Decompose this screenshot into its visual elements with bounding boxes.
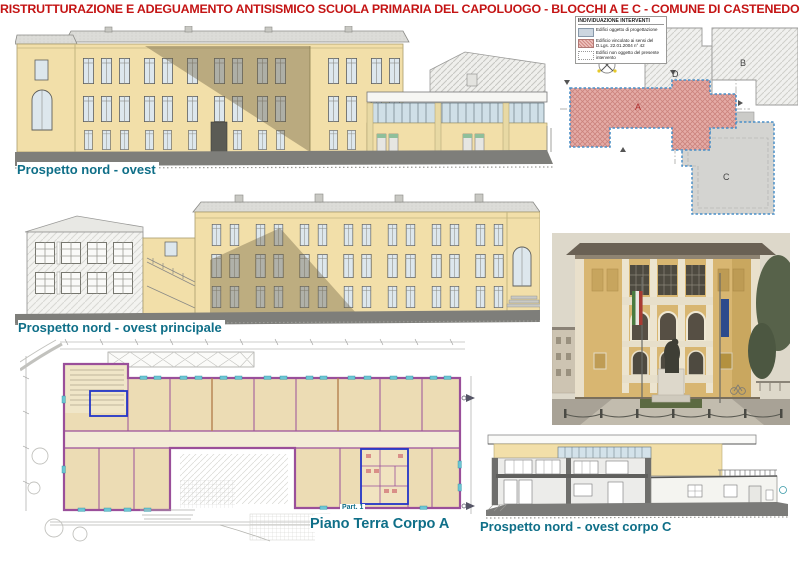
- main-elevation-drawing: [15, 190, 540, 325]
- floor-plan-detail-label: Part. 1: [340, 504, 365, 511]
- top-elevation-svg: [15, 26, 555, 176]
- top-elevation-building: [15, 26, 555, 168]
- photo-top-windows: [630, 265, 705, 295]
- school-photo-svg: [552, 233, 790, 425]
- ground-band: [486, 502, 788, 516]
- top-elevation-label: Prospetto nord - ovest: [17, 162, 159, 177]
- legend-swatch-white-dotted: [578, 51, 594, 60]
- floor-plan-label: Piano Terra Corpo A: [310, 516, 452, 532]
- corpo-c-building: [486, 435, 790, 518]
- legend-item: Edifici non oggetto del presente interve…: [578, 50, 664, 60]
- block-d-label: D: [672, 69, 679, 79]
- presentation-board: { "title": "RISTRUTTURAZIONE E ADEGUAMEN…: [0, 0, 800, 566]
- photo-scene: [552, 233, 790, 425]
- legend-title: INDIVIDUAZIONE INTERVENTI: [578, 18, 664, 25]
- main-elevation-svg: [15, 190, 540, 325]
- corpo-c-elevation-drawing: [478, 430, 793, 522]
- key-plan-legend: INDIVIDUAZIONE INTERVENTI Edifici oggett…: [575, 16, 667, 64]
- main-elevation-building: [15, 194, 540, 325]
- legend-swatch-blue-gray: [578, 28, 594, 37]
- corpo-c-elevation-svg: [478, 430, 793, 522]
- plan-section-arrows: [462, 394, 475, 510]
- block-b-label: B: [740, 58, 746, 68]
- legend-item: Edificio vincolato ai sensi del D.Lgs. 2…: [578, 38, 664, 48]
- corpo-c-elevation-label: Prospetto nord - ovest corpo C: [480, 519, 674, 534]
- annex-gym: [367, 92, 551, 152]
- block-c-label: C: [723, 172, 730, 182]
- block-a-label: A: [635, 102, 641, 112]
- main-elevation-label: Prospetto nord - ovest principale: [18, 320, 225, 335]
- legend-swatch-pink-hatch: [578, 39, 594, 48]
- roof-railing: [718, 470, 777, 476]
- key-plan: INDIVIDUAZIONE INTERVENTI Edifici oggett…: [560, 14, 798, 222]
- top-elevation-drawing: [15, 26, 555, 176]
- school-photo: [552, 233, 790, 425]
- legend-item: Edifici oggetto di progettazione: [578, 27, 664, 37]
